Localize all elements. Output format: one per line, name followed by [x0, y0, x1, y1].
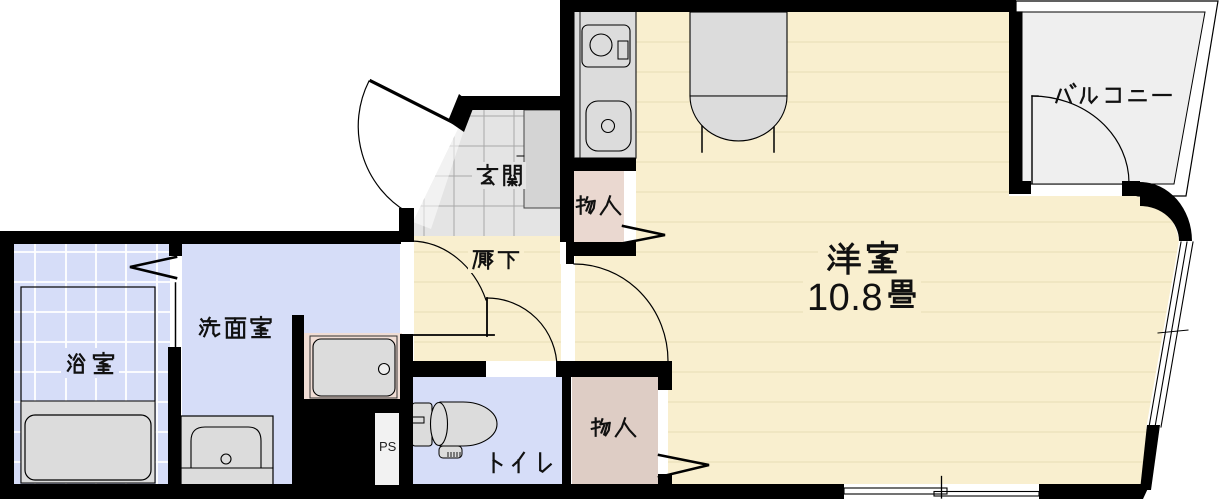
- svg-text:10.8: 10.8: [807, 277, 883, 319]
- svg-text:PS: PS: [379, 439, 397, 454]
